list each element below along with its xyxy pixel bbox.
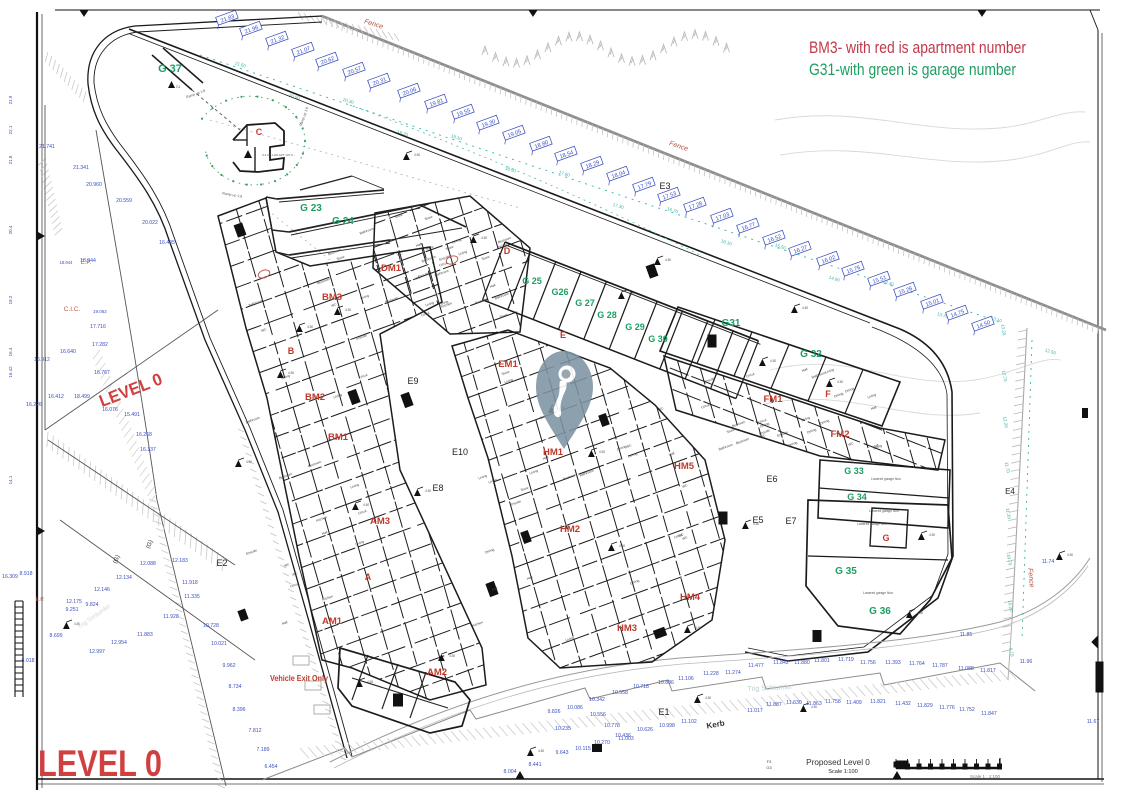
- svg-text:GL: GL: [176, 85, 181, 89]
- svg-text:10.558: 10.558: [612, 690, 628, 696]
- svg-text:AM2: AM2: [427, 667, 447, 678]
- svg-text:11.756: 11.756: [860, 660, 876, 666]
- svg-text:D: D: [504, 246, 511, 256]
- svg-text:10.728: 10.728: [203, 623, 219, 629]
- svg-text:16.268: 16.268: [136, 432, 152, 438]
- svg-text:10.086: 10.086: [567, 705, 583, 711]
- svg-text:16.912: 16.912: [34, 357, 50, 363]
- svg-text:11.228: 11.228: [703, 671, 719, 677]
- svg-text:BM1: BM1: [328, 432, 349, 443]
- svg-text:16.412: 16.412: [48, 394, 64, 400]
- svg-text:4.50: 4.50: [705, 696, 711, 700]
- svg-text:4.50: 4.50: [481, 236, 487, 240]
- svg-text:G31: G31: [722, 318, 741, 329]
- svg-text:G 28: G 28: [597, 310, 617, 320]
- svg-text:AM1: AM1: [322, 616, 343, 627]
- svg-text:16.309: 16.309: [2, 574, 18, 580]
- svg-text:21.741: 21.741: [39, 144, 55, 150]
- svg-text:21.8: 21.8: [8, 155, 13, 164]
- svg-text:11.776: 11.776: [939, 705, 955, 711]
- svg-text:G 24: G 24: [332, 216, 354, 227]
- svg-text:FM2: FM2: [831, 429, 850, 440]
- svg-text:8.699: 8.699: [50, 633, 63, 639]
- svg-text:7.189: 7.189: [257, 747, 270, 753]
- svg-text:Lowered garage floor: Lowered garage floor: [857, 522, 888, 526]
- svg-text:4.50: 4.50: [695, 626, 701, 630]
- svg-text:HM5: HM5: [674, 461, 695, 472]
- svg-text:8.004: 8.004: [504, 769, 517, 775]
- svg-text:4.50: 4.50: [802, 306, 808, 310]
- svg-text:12.146: 12.146: [94, 587, 110, 593]
- svg-text:9.962: 9.962: [223, 663, 236, 669]
- svg-text:BM2: BM2: [305, 392, 325, 403]
- svg-text:11.96: 11.96: [1020, 659, 1033, 665]
- svg-text:4.50: 4.50: [363, 503, 369, 507]
- svg-text:10.556: 10.556: [590, 712, 606, 718]
- svg-text:11.409: 11.409: [846, 700, 862, 706]
- svg-text:11.829: 11.829: [917, 703, 933, 709]
- svg-text:G 35: G 35: [835, 566, 857, 577]
- svg-text:4.50: 4.50: [246, 460, 252, 464]
- svg-text:4.50: 4.50: [1067, 553, 1073, 557]
- svg-text:G 25: G 25: [522, 276, 542, 286]
- svg-text:11.821: 11.821: [870, 699, 886, 705]
- svg-text:11.918: 11.918: [182, 580, 198, 586]
- svg-text:HM4: HM4: [680, 592, 701, 603]
- svg-text:E.P.: E.P.: [36, 597, 45, 603]
- svg-text:G3: G3: [766, 765, 772, 770]
- svg-text:G: G: [882, 533, 889, 543]
- svg-text:LEVEL 0: LEVEL 0: [38, 743, 162, 784]
- svg-text:F3: F3: [767, 759, 772, 764]
- svg-text:HM2: HM2: [560, 524, 580, 535]
- svg-text:11.477: 11.477: [748, 663, 764, 669]
- svg-text:B: B: [288, 346, 295, 356]
- svg-text:Vehicle Exit Only: Vehicle Exit Only: [270, 674, 328, 683]
- svg-text:G31-with green is garage numbe: G31-with green is garage number: [809, 60, 1016, 79]
- svg-text:12.183: 12.183: [172, 558, 188, 564]
- svg-text:G 23: G 23: [300, 203, 322, 214]
- svg-text:4.4 OS LHS APT 107.0...: 4.4 OS LHS APT 107.0...: [262, 153, 295, 157]
- svg-text:11.274: 11.274: [725, 670, 741, 676]
- svg-text:BM3: BM3: [322, 292, 342, 303]
- svg-text:10.778: 10.778: [604, 723, 620, 729]
- svg-text:Scale 1 : 1:100: Scale 1 : 1:100: [970, 774, 1001, 779]
- svg-text:4.50: 4.50: [307, 325, 313, 329]
- svg-text:11.801: 11.801: [814, 658, 830, 664]
- svg-text:G 34: G 34: [847, 492, 867, 502]
- svg-text:4.50: 4.50: [345, 308, 351, 312]
- svg-text:E.P.: E.P.: [81, 260, 92, 266]
- svg-text:15.491: 15.491: [124, 412, 140, 418]
- svg-text:10.115: 10.115: [575, 746, 591, 752]
- svg-text:11.088: 11.088: [958, 666, 974, 672]
- svg-text:G 37: G 37: [158, 63, 182, 75]
- svg-text:9.251: 9.251: [66, 607, 79, 613]
- svg-text:E1: E1: [658, 707, 669, 717]
- svg-text:4.50: 4.50: [414, 153, 420, 157]
- svg-text:11.887: 11.887: [766, 702, 782, 708]
- svg-text:Proposed Level 0: Proposed Level 0: [806, 758, 870, 767]
- svg-text:11.102: 11.102: [681, 719, 697, 725]
- svg-text:G 29: G 29: [625, 322, 645, 332]
- svg-text:11.85: 11.85: [960, 632, 973, 638]
- svg-text:11.817: 11.817: [980, 668, 996, 674]
- svg-text:11.432: 11.432: [895, 701, 911, 707]
- svg-text:11.017: 11.017: [747, 708, 763, 714]
- svg-text:16.226: 16.226: [26, 402, 42, 408]
- svg-text:12.954: 12.954: [111, 640, 127, 646]
- svg-text:11.787: 11.787: [932, 663, 948, 669]
- svg-text:4.50: 4.50: [753, 522, 759, 526]
- svg-text:11.74: 11.74: [1042, 559, 1055, 565]
- svg-text:10.342: 10.342: [589, 697, 605, 703]
- svg-text:11.630: 11.630: [786, 700, 802, 706]
- svg-text:11.847: 11.847: [981, 711, 997, 717]
- svg-text:C: C: [256, 127, 263, 137]
- svg-text:11.752: 11.752: [959, 707, 975, 713]
- svg-text:10.886: 10.886: [658, 680, 674, 686]
- svg-text:E8: E8: [432, 483, 443, 493]
- svg-text:14.1: 14.1: [8, 475, 13, 484]
- svg-text:11.842: 11.842: [773, 660, 789, 666]
- svg-text:E2: E2: [216, 558, 227, 568]
- svg-text:11.719: 11.719: [838, 657, 854, 663]
- svg-text:4.50: 4.50: [665, 258, 671, 262]
- svg-text:4.50: 4.50: [449, 654, 455, 658]
- svg-text:10.626: 10.626: [637, 727, 653, 733]
- svg-text:8.918: 8.918: [20, 571, 33, 577]
- svg-text:E7: E7: [785, 516, 796, 526]
- svg-text:19.062: 19.062: [93, 309, 107, 314]
- svg-text:E4: E4: [1005, 487, 1015, 496]
- svg-text:4.50: 4.50: [917, 611, 923, 615]
- svg-text:10.021: 10.021: [211, 641, 227, 647]
- svg-text:17.282: 17.282: [92, 342, 108, 348]
- svg-text:12.997: 12.997: [89, 649, 105, 655]
- svg-text:16.640: 16.640: [60, 349, 76, 355]
- svg-text:20.559: 20.559: [116, 198, 132, 204]
- svg-text:16.767: 16.767: [94, 370, 110, 376]
- svg-text:BM3- with red is apartment num: BM3- with red is apartment number: [809, 38, 1026, 57]
- svg-text:11.67: 11.67: [1087, 719, 1100, 725]
- svg-text:11.764: 11.764: [909, 661, 925, 667]
- svg-text:4.50: 4.50: [425, 489, 431, 493]
- svg-text:20.960: 20.960: [86, 182, 102, 188]
- svg-text:9.826: 9.826: [548, 709, 561, 715]
- svg-text:4.50: 4.50: [367, 680, 373, 684]
- svg-text:11.393: 11.393: [885, 660, 901, 666]
- svg-text:21.9: 21.9: [8, 95, 13, 104]
- svg-text:11.003: 11.003: [618, 736, 634, 742]
- svg-text:4.50: 4.50: [599, 450, 605, 454]
- svg-text:10.235: 10.235: [555, 726, 571, 732]
- svg-text:8.441: 8.441: [529, 762, 542, 768]
- svg-text:10.998: 10.998: [659, 723, 675, 729]
- svg-text:7.812: 7.812: [249, 728, 262, 734]
- svg-text:12.088: 12.088: [140, 561, 156, 567]
- svg-text:16.137: 16.137: [140, 447, 156, 453]
- svg-text:11.335: 11.335: [184, 594, 200, 600]
- svg-text:8.396: 8.396: [233, 707, 246, 713]
- svg-text:11.883: 11.883: [137, 632, 153, 638]
- svg-text:Scale 1:100: Scale 1:100: [828, 769, 858, 775]
- svg-text:4.50: 4.50: [770, 359, 776, 363]
- svg-text:11.928: 11.928: [163, 614, 179, 620]
- svg-text:12.134: 12.134: [116, 575, 132, 581]
- svg-text:HM3: HM3: [617, 623, 637, 634]
- svg-text:17.716: 17.716: [90, 324, 106, 330]
- svg-text:11.863: 11.863: [806, 701, 822, 707]
- svg-text:E6: E6: [766, 474, 777, 484]
- svg-text:10.718: 10.718: [633, 684, 649, 690]
- svg-text:FM1: FM1: [764, 394, 784, 405]
- svg-text:11.758: 11.758: [825, 699, 841, 705]
- svg-text:21.341: 21.341: [73, 165, 89, 171]
- svg-text:Lowered garage floor: Lowered garage floor: [871, 477, 902, 481]
- svg-text:A: A: [365, 572, 372, 582]
- svg-text:4.50: 4.50: [619, 544, 625, 548]
- svg-text:9.643: 9.643: [556, 750, 569, 756]
- svg-text:E9: E9: [407, 376, 418, 386]
- svg-text:G 36: G 36: [869, 606, 891, 617]
- svg-text:G 32: G 32: [800, 349, 822, 360]
- svg-text:18.2: 18.2: [8, 295, 13, 304]
- svg-text:6.454: 6.454: [265, 764, 278, 770]
- svg-text:10.270: 10.270: [594, 740, 610, 746]
- svg-text:4.50: 4.50: [629, 292, 635, 296]
- svg-text:11.880: 11.880: [794, 660, 810, 666]
- svg-text:22.1: 22.1: [8, 125, 13, 134]
- svg-text:9.824: 9.824: [86, 602, 99, 608]
- svg-text:AM3: AM3: [370, 516, 390, 527]
- svg-text:G 27: G 27: [575, 298, 595, 308]
- svg-text:20.022: 20.022: [142, 220, 158, 226]
- svg-text:16.4: 16.4: [8, 347, 13, 356]
- svg-text:G 33: G 33: [844, 466, 864, 476]
- svg-text:DM1: DM1: [381, 263, 402, 274]
- svg-text:4.50: 4.50: [929, 533, 935, 537]
- svg-text:G 30: G 30: [648, 334, 668, 344]
- svg-text:18.944: 18.944: [60, 260, 73, 265]
- svg-text:20.4: 20.4: [8, 225, 13, 234]
- svg-text:12.175: 12.175: [66, 599, 82, 605]
- svg-text:11.106: 11.106: [678, 676, 694, 682]
- svg-text:16.495: 16.495: [159, 240, 175, 246]
- svg-text:HM1: HM1: [543, 447, 564, 458]
- svg-text:E: E: [560, 330, 566, 340]
- svg-text:6.018: 6.018: [22, 658, 35, 664]
- svg-text:8.734: 8.734: [229, 684, 242, 690]
- svg-text:E3: E3: [659, 181, 670, 191]
- svg-text:E10: E10: [452, 447, 468, 457]
- svg-text:F: F: [825, 389, 831, 399]
- svg-text:Lowered garage floor: Lowered garage floor: [863, 591, 894, 595]
- svg-text:18.499: 18.499: [74, 394, 90, 400]
- svg-text:G26: G26: [551, 287, 568, 297]
- svg-text:C.I.C.: C.I.C.: [64, 306, 81, 313]
- svg-text:16.42: 16.42: [8, 366, 13, 378]
- svg-text:EM1: EM1: [498, 359, 518, 370]
- svg-text:4.50: 4.50: [837, 380, 843, 384]
- svg-text:4.50: 4.50: [538, 749, 544, 753]
